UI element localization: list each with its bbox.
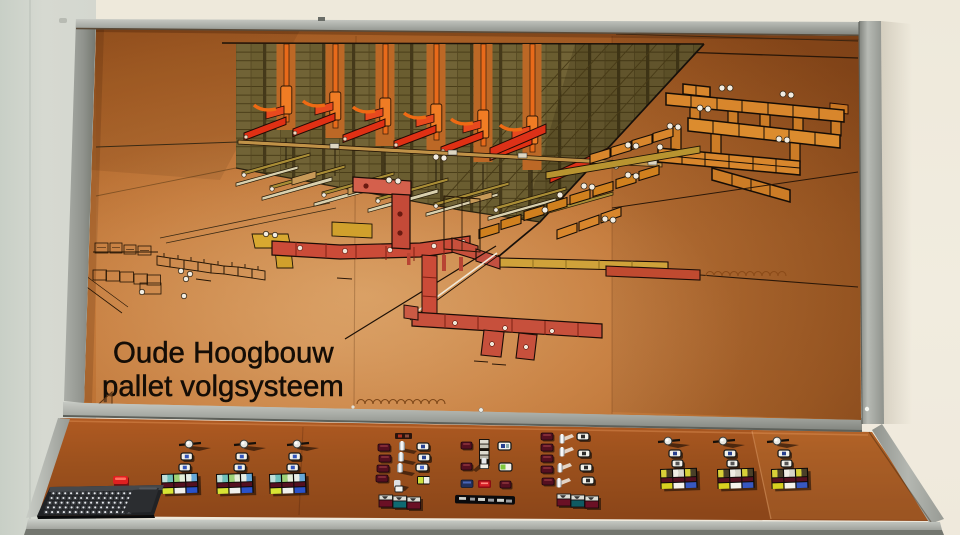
svg-text:Oude Hoogbouw: Oude Hoogbouw [113,337,334,370]
svg-text:pallet volgsysteem: pallet volgsysteem [102,370,344,403]
